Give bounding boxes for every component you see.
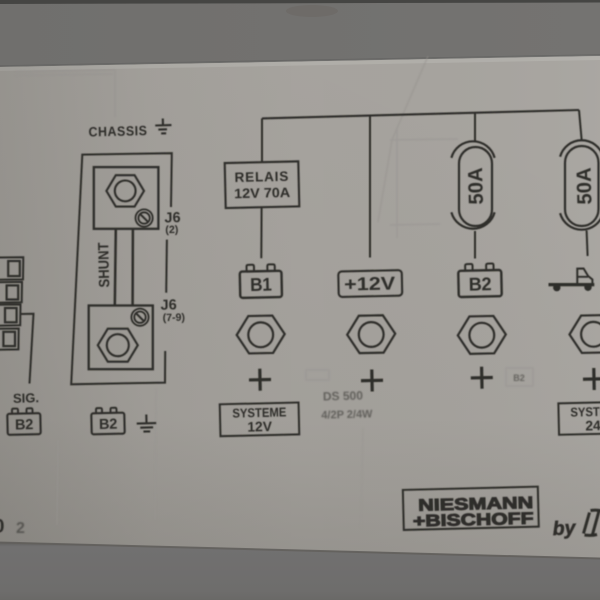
- svg-text:RELAIS: RELAIS: [234, 169, 289, 185]
- svg-text:(7-9): (7-9): [163, 312, 186, 325]
- svg-text:50A: 50A: [573, 167, 597, 205]
- svg-text:4/2P 2/4W: 4/2P 2/4W: [321, 408, 373, 421]
- svg-text:0: 0: [0, 516, 5, 538]
- svg-text:B2: B2: [513, 373, 525, 383]
- svg-text:2: 2: [16, 520, 25, 537]
- svg-text:B2: B2: [99, 417, 118, 433]
- svg-text:DS 500: DS 500: [323, 388, 364, 403]
- svg-text:24V: 24V: [585, 418, 600, 434]
- svg-text:SYSTEME: SYSTEME: [570, 403, 600, 419]
- svg-text:SHUNT: SHUNT: [96, 242, 113, 287]
- svg-text:12V 70A: 12V 70A: [234, 185, 291, 201]
- svg-text:by: by: [552, 517, 577, 540]
- svg-text:50A: 50A: [464, 167, 488, 205]
- svg-text:B1: B1: [250, 274, 272, 295]
- svg-text:12V: 12V: [247, 419, 273, 435]
- svg-text:SIG.: SIG.: [13, 390, 39, 406]
- svg-text:CHASSIS: CHASSIS: [88, 123, 147, 139]
- svg-text:SYSTEME: SYSTEME: [232, 404, 287, 420]
- svg-text:B2: B2: [15, 417, 34, 433]
- svg-text:+12V: +12V: [344, 272, 396, 294]
- svg-text:(2): (2): [165, 224, 178, 236]
- svg-text:+BISCHOFF: +BISCHOFF: [413, 510, 534, 531]
- svg-text:B2: B2: [469, 273, 492, 294]
